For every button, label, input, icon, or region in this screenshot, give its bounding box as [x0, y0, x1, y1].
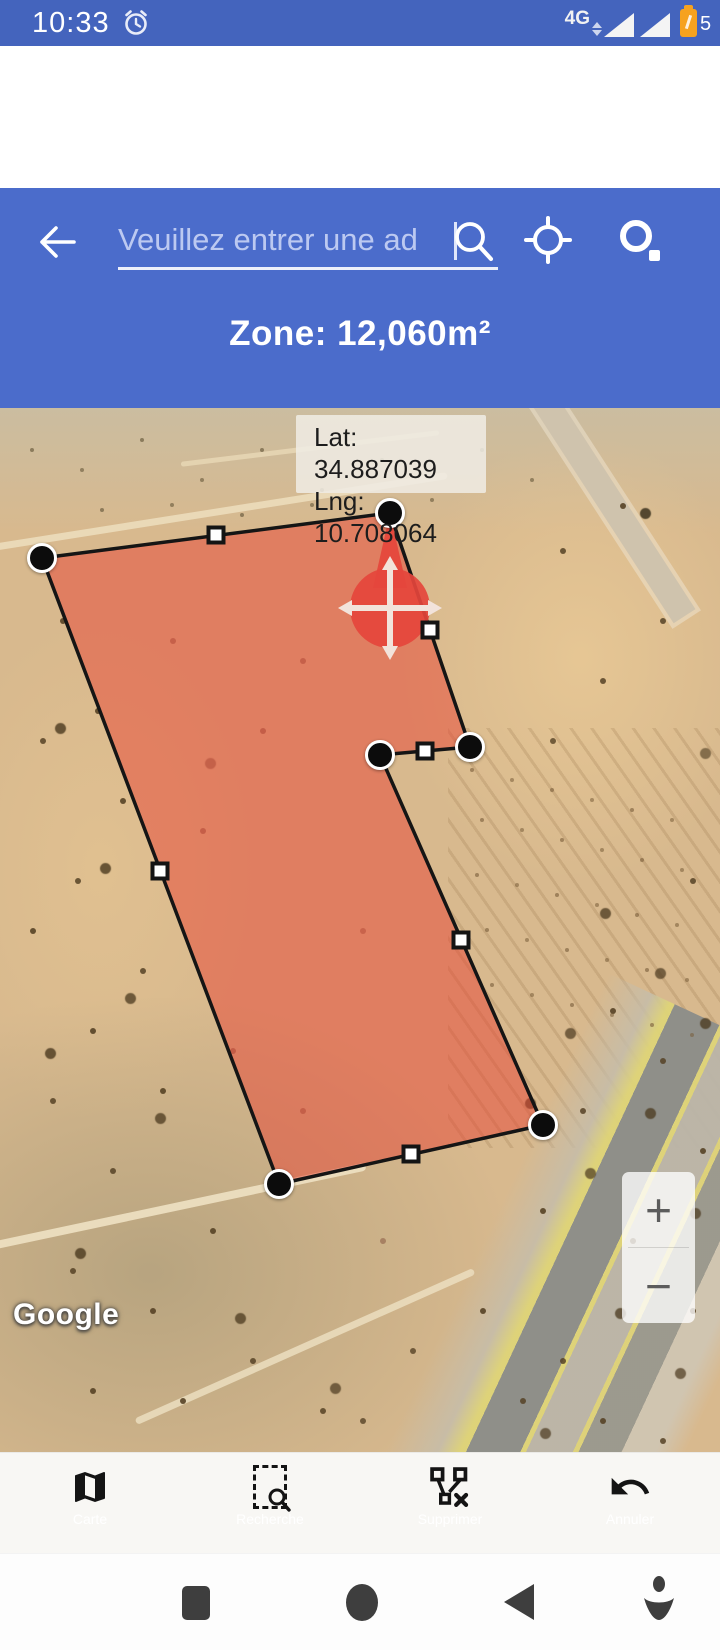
- android-navigation-bar: [0, 1553, 720, 1650]
- zoom-out-button[interactable]: −: [622, 1248, 695, 1323]
- clock-time: 10:33: [32, 7, 110, 40]
- undo-button[interactable]: Annuler: [540, 1453, 720, 1554]
- map-type-button[interactable]: Carte: [0, 1453, 180, 1554]
- polygon-midpoint-handle[interactable]: [402, 1145, 421, 1164]
- phone-screen: 10:33 4G 5 Veuillez entrer une ad: [0, 0, 720, 1650]
- google-attribution: Google: [13, 1298, 119, 1332]
- latitude-value: Lat: 34.887039: [314, 421, 486, 485]
- tool-label: Carte: [73, 1511, 107, 1527]
- signal-strength-icon: [604, 13, 634, 37]
- status-icons: 4G 5: [565, 0, 714, 46]
- search-icon[interactable]: [450, 216, 496, 271]
- status-bar: 10:33 4G 5: [0, 0, 720, 46]
- polygon-vertex-handle[interactable]: [27, 543, 57, 573]
- polygon-vertex-handle[interactable]: [528, 1110, 558, 1140]
- data-activity-icon: [592, 22, 602, 36]
- input-underline: [118, 267, 498, 270]
- blank-app-area: [0, 46, 720, 188]
- tool-label: Annuler: [606, 1511, 654, 1527]
- polygon-midpoint-handle[interactable]: [151, 862, 170, 881]
- address-search-input[interactable]: Veuillez entrer une ad: [118, 214, 498, 270]
- signal-strength-icon-2: [640, 13, 670, 37]
- zoom-controls: + −: [622, 1172, 695, 1323]
- coordinates-tooltip: Lat: 34.887039 Lng: 10.708064: [296, 415, 486, 493]
- map-icon: [70, 1465, 110, 1509]
- network-type-label: 4G: [565, 8, 590, 30]
- measure-tape-button[interactable]: [612, 214, 668, 266]
- search-area-icon: [253, 1465, 287, 1509]
- polygon-vertex-handle[interactable]: [365, 740, 395, 770]
- delete-vertices-icon: [429, 1465, 471, 1509]
- alarm-icon: [122, 8, 150, 43]
- longitude-value: Lng: 10.708064: [314, 485, 486, 549]
- tool-label: Recherche: [236, 1511, 304, 1527]
- search-area-button[interactable]: Recherche: [180, 1453, 360, 1554]
- polygon-vertex-handle[interactable]: [264, 1169, 294, 1199]
- hide-navbar-button[interactable]: [636, 1574, 682, 1635]
- zoom-in-button[interactable]: +: [622, 1172, 695, 1247]
- polygon-midpoint-handle[interactable]: [452, 931, 471, 950]
- polygon-midpoint-handle[interactable]: [207, 526, 226, 545]
- app-header: Veuillez entrer une ad Zone: 12,060m²: [0, 188, 720, 408]
- back-nav-button[interactable]: [504, 1584, 534, 1620]
- satellite-map[interactable]: Lat: 34.887039 Lng: 10.708064 Google + −: [0, 408, 720, 1452]
- polygon-midpoint-handle[interactable]: [416, 742, 435, 761]
- search-placeholder: Veuillez entrer une ad: [118, 222, 454, 258]
- bottom-toolbar: Carte Recherche: [0, 1452, 720, 1554]
- measurement-polygon-layer: [0, 408, 720, 1452]
- gps-locate-button[interactable]: [522, 214, 574, 266]
- zone-area-label: Zone: 12,060m²: [0, 314, 720, 354]
- measured-area-polygon: [42, 513, 543, 1184]
- battery-percent: 5: [700, 13, 714, 36]
- battery-icon: [680, 9, 697, 37]
- polygon-vertex-handle[interactable]: [455, 732, 485, 762]
- back-button[interactable]: [30, 218, 84, 266]
- undo-icon: [608, 1465, 652, 1509]
- tool-label: Supprimer: [418, 1511, 483, 1527]
- polygon-midpoint-handle[interactable]: [421, 621, 440, 640]
- home-button[interactable]: [346, 1584, 378, 1621]
- delete-points-button[interactable]: Supprimer: [360, 1453, 540, 1554]
- recents-button[interactable]: [182, 1586, 210, 1620]
